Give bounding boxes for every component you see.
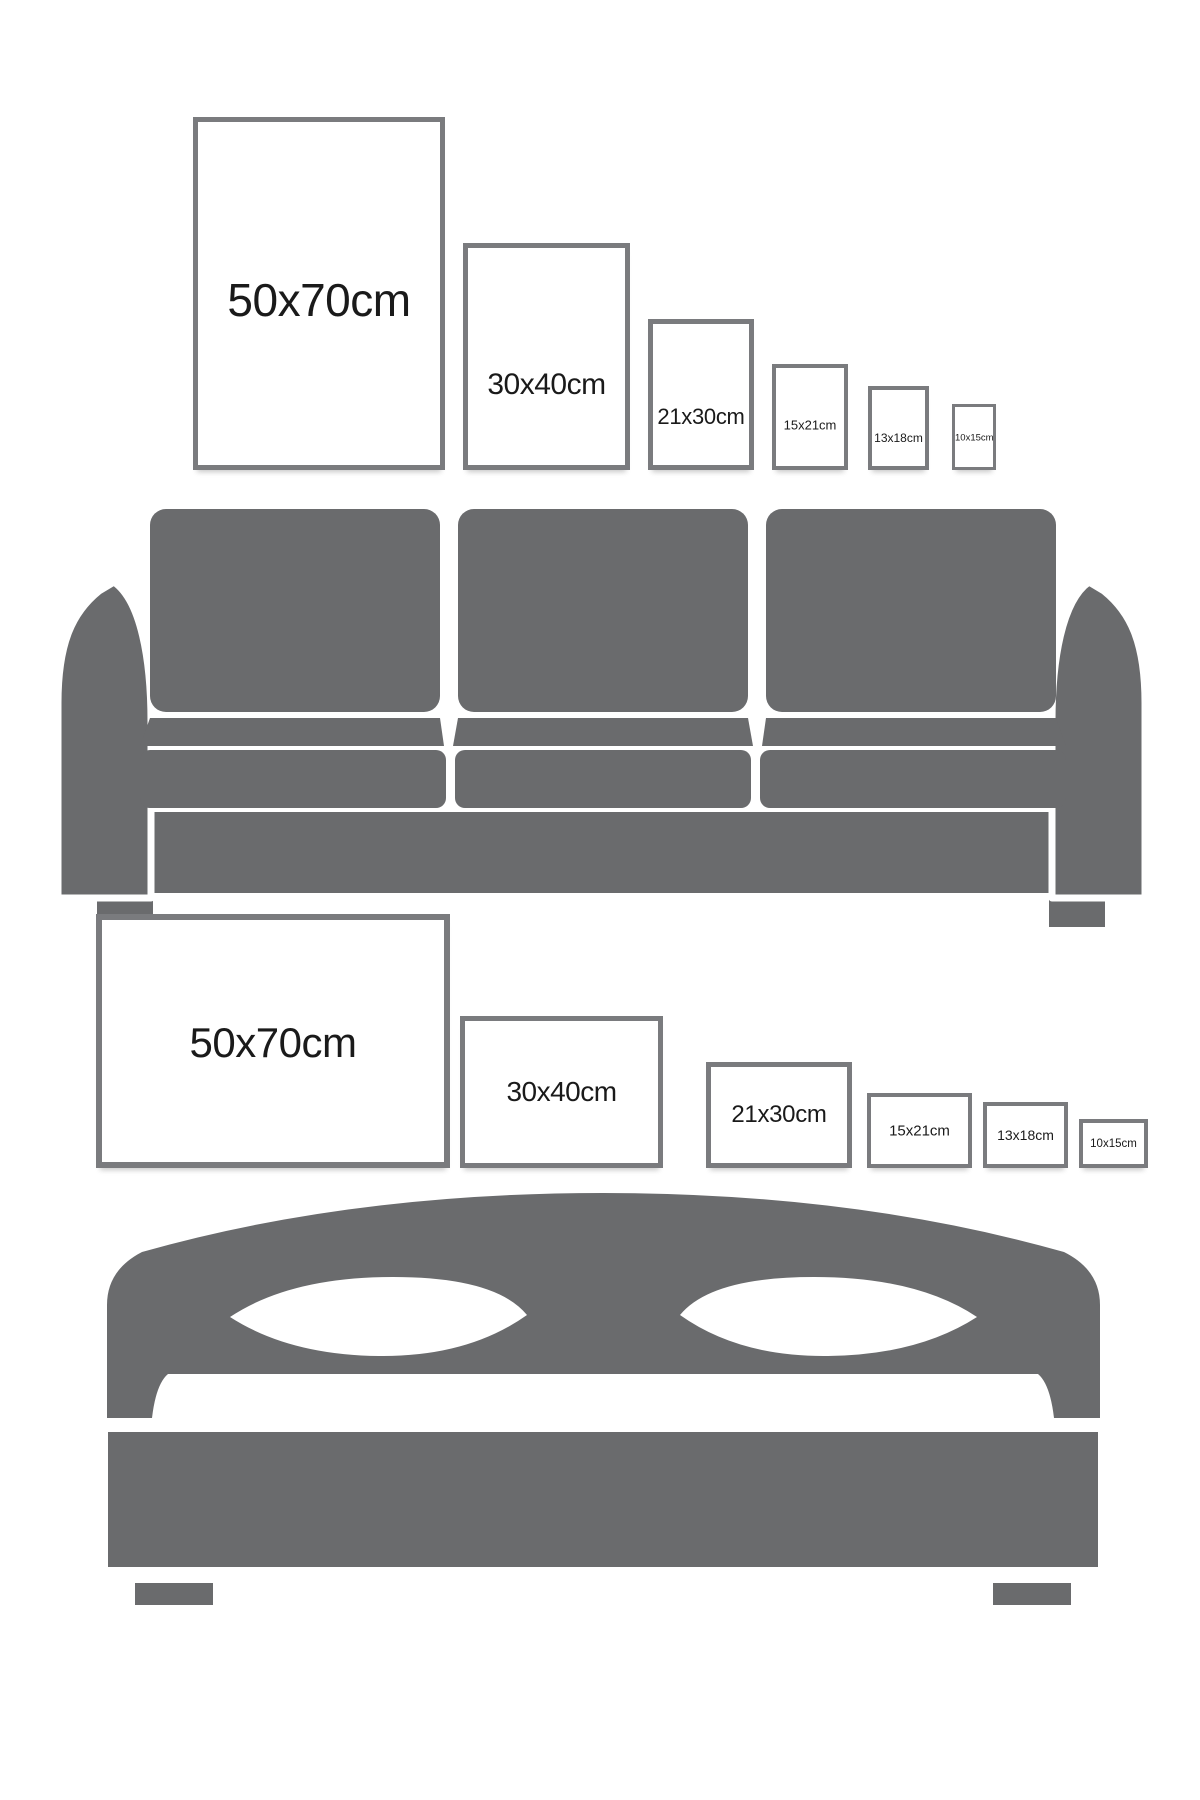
size-frame-landscape-15x21: 15x21cm xyxy=(867,1093,972,1168)
size-label: 13x18cm xyxy=(987,1127,1064,1143)
size-frame-landscape-30x40: 30x40cm xyxy=(460,1016,663,1168)
size-label: 50x70cm xyxy=(198,273,440,327)
size-label: 13x18cm xyxy=(872,431,925,445)
size-label: 30x40cm xyxy=(465,1076,658,1108)
size-frame-landscape-50x70: 50x70cm xyxy=(96,914,450,1168)
size-frame-portrait-15x21: 15x21cm xyxy=(772,364,848,470)
size-label: 50x70cm xyxy=(102,1019,444,1067)
sofa-icon xyxy=(0,490,1200,950)
size-label: 21x30cm xyxy=(711,1101,847,1129)
size-frame-portrait-50x70: 50x70cm xyxy=(193,117,445,470)
size-label: 15x21cm xyxy=(871,1122,968,1139)
size-frame-landscape-13x18: 13x18cm xyxy=(983,1102,1068,1168)
bed-icon xyxy=(0,1185,1200,1615)
size-label: 30x40cm xyxy=(468,368,625,402)
size-frame-portrait-13x18: 13x18cm xyxy=(868,386,929,470)
size-frame-portrait-30x40: 30x40cm xyxy=(463,243,630,470)
size-frame-landscape-10x15: 10x15cm xyxy=(1079,1119,1148,1168)
poster-size-guide: 50x70cm 30x40cm 21x30cm 15x21cm 13x18cm … xyxy=(0,0,1200,1800)
size-label: 15x21cm xyxy=(776,417,844,432)
size-frame-portrait-10x15: 10x15cm xyxy=(952,404,996,470)
size-label: 21x30cm xyxy=(653,404,749,430)
size-frame-landscape-21x30: 21x30cm xyxy=(706,1062,852,1168)
size-label: 10x15cm xyxy=(1083,1138,1144,1150)
size-frame-portrait-21x30: 21x30cm xyxy=(648,319,754,470)
size-label: 10x15cm xyxy=(955,433,993,444)
